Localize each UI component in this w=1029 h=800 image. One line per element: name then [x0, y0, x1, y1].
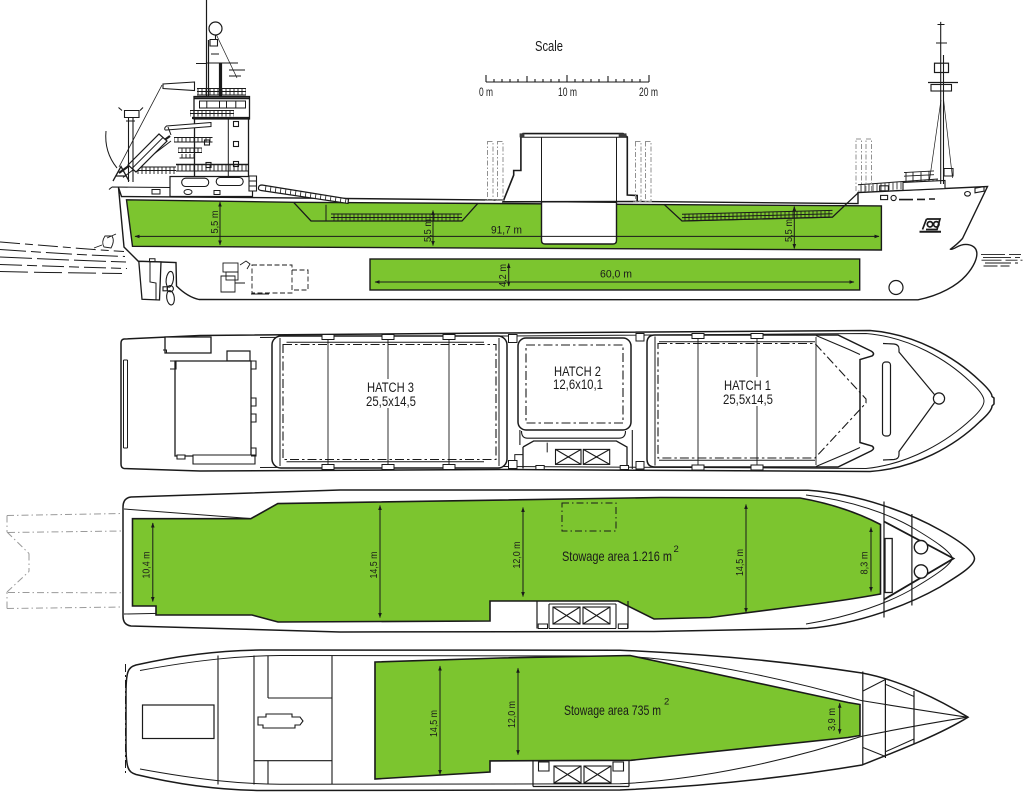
svg-text:3,9 m: 3,9 m [826, 708, 838, 731]
svg-text:HATCH 3: HATCH 3 [367, 380, 414, 395]
svg-text:25,5x14,5: 25,5x14,5 [366, 394, 416, 409]
svg-text:Stowage area 735 m: Stowage area 735 m [564, 702, 661, 718]
svg-text:4,2 m: 4,2 m [497, 264, 509, 287]
svg-text:0 m: 0 m [479, 87, 493, 99]
svg-text:14,5 m: 14,5 m [734, 549, 746, 576]
svg-text:20 m: 20 m [639, 87, 658, 99]
svg-text:12,0 m: 12,0 m [506, 701, 518, 728]
svg-text:12,6x10,1: 12,6x10,1 [553, 377, 603, 392]
svg-text:91,7 m: 91,7 m [491, 225, 522, 237]
svg-text:5,5 m: 5,5 m [209, 210, 221, 233]
svg-text:60,0 m: 60,0 m [600, 269, 632, 281]
svg-text:2: 2 [674, 544, 679, 555]
svg-text:2: 2 [664, 697, 669, 708]
svg-text:25,5x14,5: 25,5x14,5 [723, 392, 773, 407]
svg-text:10,4 m: 10,4 m [141, 551, 153, 578]
svg-text:Stowage area 1.216 m: Stowage area 1.216 m [562, 548, 672, 564]
svg-text:Scale: Scale [535, 39, 563, 55]
svg-text:10 m: 10 m [558, 87, 577, 99]
svg-text:5,5 m: 5,5 m [422, 219, 434, 242]
svg-text:5,5 m: 5,5 m [783, 219, 795, 242]
svg-text:HATCH 1: HATCH 1 [724, 378, 771, 393]
svg-text:8,3 m: 8,3 m [859, 551, 871, 574]
svg-text:12,0 m: 12,0 m [511, 541, 523, 568]
svg-text:14,5 m: 14,5 m [368, 551, 380, 578]
svg-text:14,5 m: 14,5 m [428, 710, 440, 737]
